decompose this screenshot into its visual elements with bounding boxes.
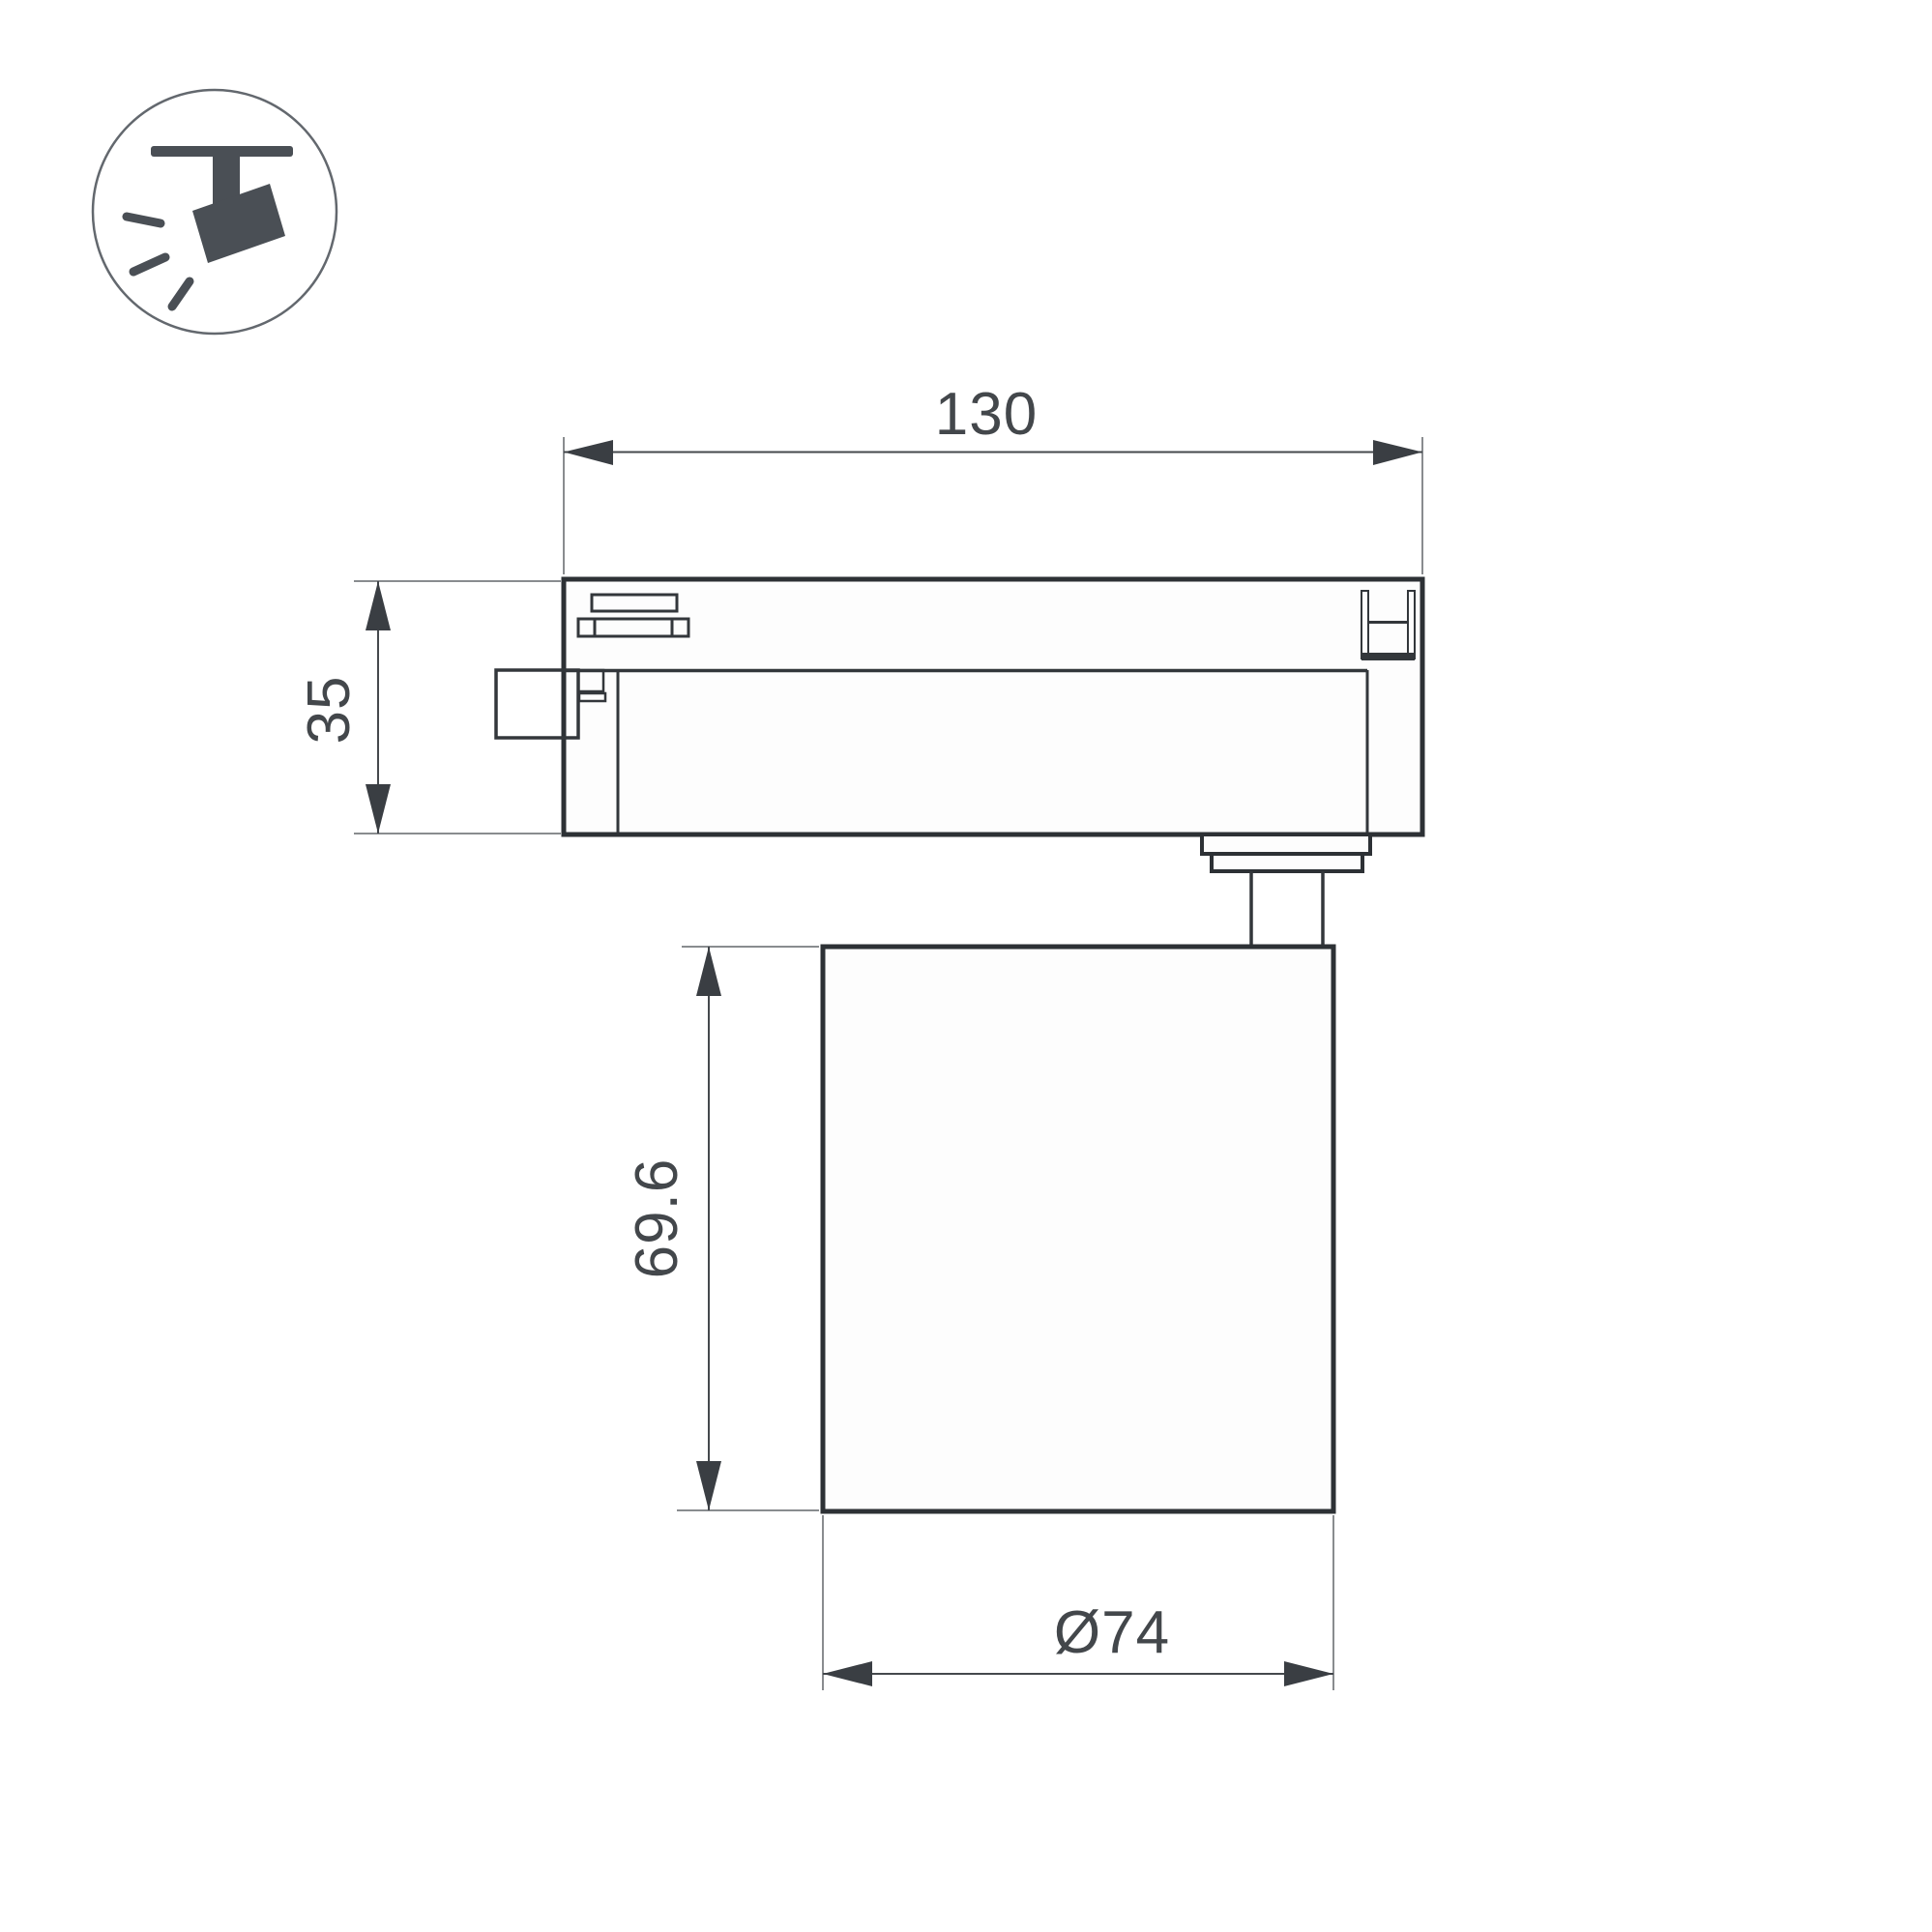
- height35-arrow-bottom: [366, 784, 391, 834]
- pivot-flange-lower: [1212, 854, 1362, 871]
- dimension-body-height: 69.6: [624, 947, 819, 1510]
- dimension-track-width: 130: [564, 381, 1422, 574]
- dimension-adapter-height: 35: [296, 581, 561, 834]
- pivot-flange-upper: [1202, 834, 1370, 854]
- track-adapter: [496, 579, 1422, 834]
- dimension-drawing-page: 130 35 69.6 Ø74: [0, 0, 1932, 1932]
- dia74-arrow-right: [1284, 1661, 1333, 1686]
- track-light-icon: [93, 90, 337, 334]
- contact-bracket-bottom-bar: [1361, 653, 1415, 660]
- width-arrow-left: [564, 440, 613, 465]
- width-arrow-right: [1373, 440, 1422, 465]
- height696-arrow-bottom: [696, 1461, 721, 1510]
- height35-dimension-label: 35: [296, 676, 363, 745]
- dimension-body-diameter: Ø74: [823, 1515, 1333, 1690]
- pivot-knuckle: [1202, 834, 1370, 947]
- width-dimension-label: 130: [935, 381, 1038, 448]
- drawing-canvas: 130 35 69.6 Ø74: [0, 0, 1932, 1932]
- track-adapter-outline: [564, 579, 1422, 834]
- dia74-dimension-label: Ø74: [1054, 1599, 1170, 1666]
- dia74-arrow-left: [823, 1661, 872, 1686]
- lamp-body-outline: [823, 947, 1333, 1511]
- height35-arrow-top: [366, 581, 391, 630]
- height696-dimension-label: 69.6: [624, 1158, 690, 1279]
- height696-arrow-top: [696, 947, 721, 996]
